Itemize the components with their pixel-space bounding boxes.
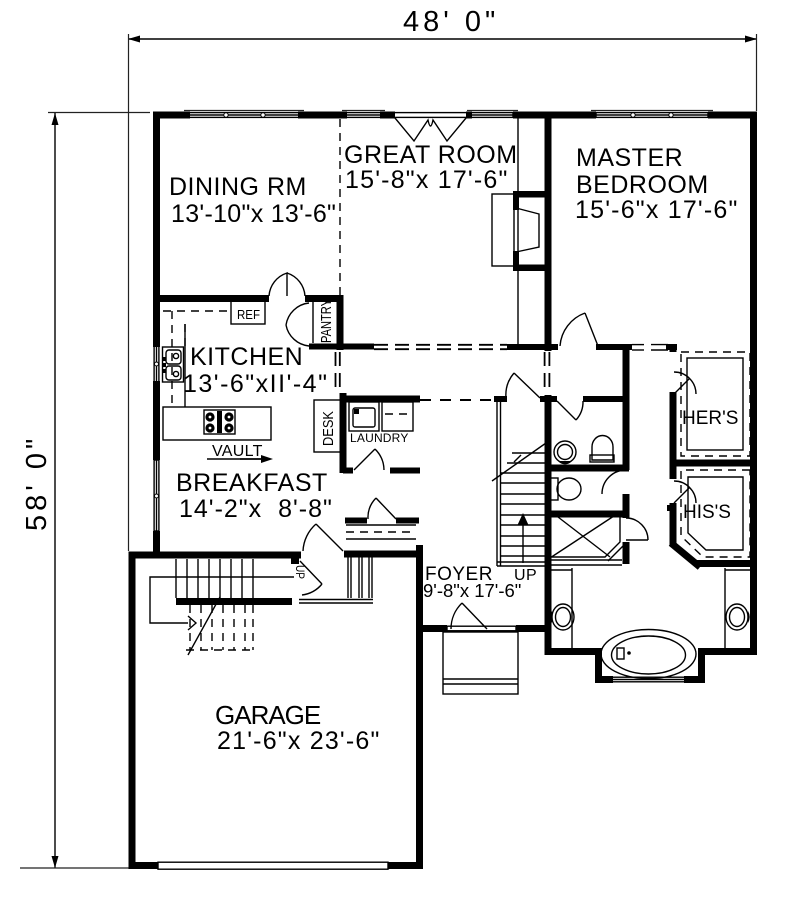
svg-text:LAUNDRY: LAUNDRY [350, 431, 409, 445]
svg-text:DINING RM: DINING RM [169, 173, 307, 201]
svg-text:BEDROOM: BEDROOM [576, 171, 709, 199]
svg-text:VAULT: VAULT [212, 443, 263, 460]
svg-text:13'-6"xII'-4": 13'-6"xII'-4" [183, 370, 328, 398]
svg-text:UP: UP [293, 565, 307, 579]
svg-text:PANTRY: PANTRY [318, 299, 335, 343]
svg-text:13'-10"x 13'-6": 13'-10"x 13'-6" [171, 200, 336, 228]
svg-text:21'-6"x 23'-6": 21'-6"x 23'-6" [217, 727, 381, 755]
svg-text:15'-6"x 17'-6": 15'-6"x 17'-6" [575, 196, 739, 224]
svg-text:15'-8"x 17'-6": 15'-8"x 17'-6" [345, 166, 509, 194]
svg-text:GREAT ROOM: GREAT ROOM [344, 141, 518, 169]
svg-text:HER'S: HER'S [682, 408, 738, 429]
svg-text:BREAKFAST: BREAKFAST [176, 469, 328, 497]
svg-text:REF: REF [237, 307, 260, 322]
svg-text:14'-2"x 8'-8": 14'-2"x 8'-8" [179, 495, 333, 523]
svg-text:9'-8"x 17'-6": 9'-8"x 17'-6" [423, 580, 521, 601]
svg-text:HIS'S: HIS'S [683, 502, 731, 523]
svg-text:MASTER: MASTER [576, 144, 683, 172]
svg-text:KITCHEN: KITCHEN [190, 343, 303, 371]
svg-text:58' 0": 58' 0" [21, 435, 53, 531]
svg-text:GARAGE: GARAGE [215, 700, 321, 730]
svg-text:DESK: DESK [320, 411, 337, 446]
svg-text:48' 0": 48' 0" [403, 6, 499, 38]
